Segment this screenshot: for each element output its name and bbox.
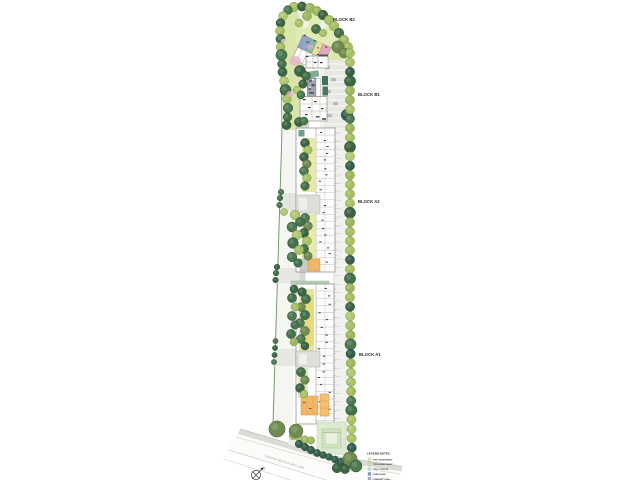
svg-text:TYPE A APARTMENT: TYPE A APARTMENT — [373, 458, 394, 461]
svg-text:BLOCK A2: BLOCK A2 — [358, 199, 380, 204]
svg-text:TYPE C DUPLEX: TYPE C DUPLEX — [373, 469, 390, 471]
svg-text:CLUB HOUSE: CLUB HOUSE — [373, 474, 387, 476]
svg-text:BLOCK A1: BLOCK A1 — [359, 352, 381, 357]
svg-text:TYPE B APARTMENT: TYPE B APARTMENT — [373, 463, 394, 466]
svg-text:BLOCK B1: BLOCK B1 — [358, 92, 380, 97]
svg-text:BLOCK B2: BLOCK B2 — [333, 17, 355, 22]
svg-text:LEGEND NOTES: LEGEND NOTES — [367, 452, 390, 456]
